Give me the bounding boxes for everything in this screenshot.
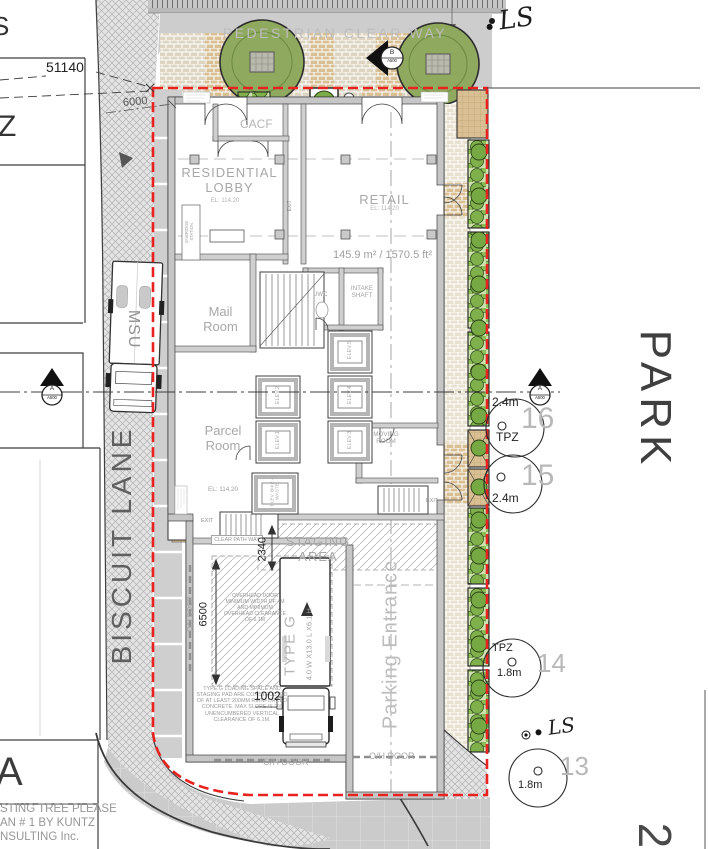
staging-area-label: STAGING AREA [278, 535, 358, 565]
section-a2-letter: A [534, 386, 546, 393]
tree-note-line1: STING TREE PLEASE [0, 803, 190, 816]
east-planting-strip [444, 90, 489, 784]
pedestrian-clear-way-label: PEDESTRIAN CLEAR WAY [205, 26, 465, 42]
park-label: PARK [630, 325, 680, 475]
dim-setback: 6000 [123, 95, 148, 110]
tpz16-radius: 2.4m [492, 396, 519, 410]
section-a2-sheet: A500 [528, 396, 552, 401]
elev-1-label: ELEV.1 [275, 420, 281, 460]
cacf-label: CACF [240, 118, 273, 132]
overhead-door-note: OVERHEAD DOOR MINIMUM WIDTH OF 4M AND MI… [223, 594, 287, 624]
dim-clear-width: 2340 [257, 527, 270, 571]
tpz15-radius: 2.4m [492, 492, 519, 506]
dim-loading-length: 6500 [198, 589, 211, 639]
edge-letter-z: Z [0, 110, 16, 144]
tpz14-number: 14 [537, 649, 566, 679]
tpz13-number: 13 [560, 752, 589, 782]
boh-elevation-label: EL: 114.20 [208, 486, 238, 493]
elev-5-label: ELEV.5 [347, 330, 353, 370]
section-b-sheet: A500 [380, 59, 404, 64]
type-g-label: TYPE G [281, 591, 298, 701]
parcel-room-label: Parcel Room [194, 424, 252, 454]
moving-room-label: MOVING ROOM [370, 431, 402, 445]
exit-east-label: EXIT [426, 498, 438, 504]
parking-entrance-label: Parking Entrance [380, 504, 403, 784]
enbridge-station-label: ENBRIDGE STATION [185, 219, 195, 245]
site-plan: PEDESTRIAN CLEAR WAY LS LS PARK BISCUIT … [0, 0, 708, 849]
oh-door-ramp-label: O/H DOOR [369, 751, 415, 761]
tree-note-line3: NSULTING Inc. [0, 831, 190, 844]
clear-path-way-label: CLEAR PATH WAY [211, 535, 263, 545]
type-g-size-label: 4.0 W X13.0 L X6.1 H [306, 579, 315, 709]
section-a-sheet: A500 [40, 396, 64, 401]
tpz16-number: 16 [521, 402, 554, 436]
edge-letter-s: S [0, 12, 9, 42]
dim-lane-length: 51140 [46, 60, 84, 76]
mail-room-label: Mail Room [193, 305, 248, 335]
biscuit-lane-label: BISCUIT LANE [106, 380, 138, 710]
tpz15-number: 15 [521, 459, 554, 493]
section-a-letter: A [46, 386, 58, 393]
tree-note-line2: AN # 1 BY KUNTZ [0, 817, 190, 830]
uwc-label: UWC [313, 292, 327, 299]
tpz13-radius: 1.8m [518, 779, 542, 792]
oh-door-side-label: O/H DOOR [187, 579, 195, 649]
retail-elevation-label: EL: 114.20 [357, 206, 412, 213]
residential-lobby-label: RESIDENTIAL LOBBY [172, 166, 287, 196]
tpz16-tag: TPZ [496, 431, 519, 445]
exit-west-label: EXIT [201, 518, 213, 524]
ls-dots [489, 18, 530, 739]
intake-shaft-label: INTAKE SHAFT [345, 285, 379, 299]
tpz14-radius: 1.8m [497, 667, 521, 680]
oh-door-loading-label: O/H DOOR [263, 757, 309, 767]
elev-3-label: ELEV.3 [347, 420, 353, 460]
lobby-elevation-label: EL: 114.20 [197, 198, 253, 205]
dim-pad-width: 1002 [254, 690, 281, 704]
tpz14-tag: TPZ [492, 642, 513, 655]
retail-area-label: 145.9 m² / 1570.5 ft² [330, 249, 435, 262]
exit-corridor-label: EXIT [288, 193, 294, 219]
lot-number-label: 20 [629, 803, 681, 849]
section-b-letter: B [386, 49, 398, 56]
elev-4-label: ELEV.4 [347, 375, 353, 415]
edge-letter-a: A [0, 750, 23, 796]
msu-truck-label: MSU [124, 294, 142, 364]
elev-2-label: ELEV.2 [275, 375, 281, 415]
elev-bike-waste-label: ELEV. BIKE & WASTE [271, 474, 282, 508]
neighbor-lots [0, 58, 100, 849]
